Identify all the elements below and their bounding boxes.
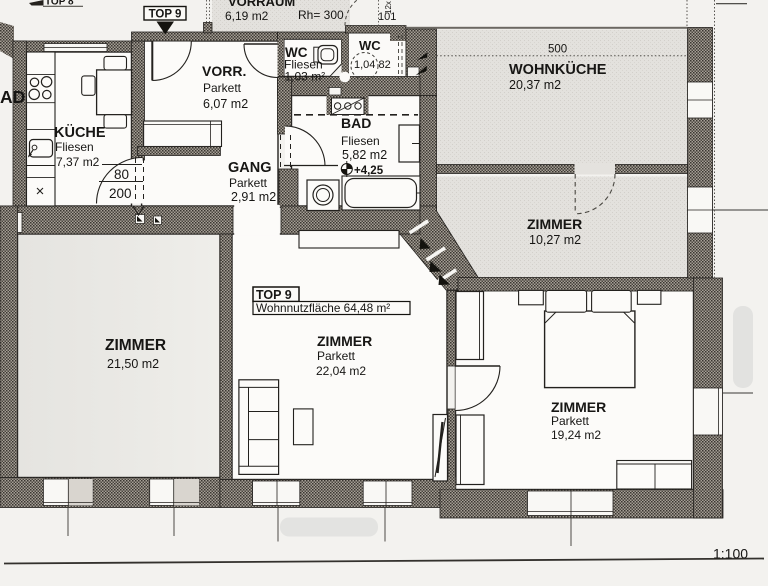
svg-text:500: 500	[548, 44, 567, 56]
svg-text:20,37 m2: 20,37 m2	[509, 78, 561, 92]
svg-text:10,27 m2: 10,27 m2	[529, 233, 581, 247]
svg-text:VORRAUM: VORRAUM	[228, 0, 295, 9]
svg-text:5,82 m2: 5,82 m2	[342, 148, 387, 162]
svg-text:TOP 9: TOP 9	[149, 8, 182, 20]
svg-text:ZIMMER: ZIMMER	[527, 216, 582, 232]
svg-text:1,03 m²: 1,03 m²	[285, 70, 326, 84]
svg-text:Fliesen: Fliesen	[341, 134, 380, 148]
svg-text:ZIMMER: ZIMMER	[317, 333, 372, 349]
svg-text:ZIMMER: ZIMMER	[105, 337, 166, 354]
svg-text:12x: 12x	[384, 1, 393, 14]
svg-text:Parkett: Parkett	[203, 81, 242, 95]
svg-text:Wohnnutzfläche 64,48 m²: Wohnnutzfläche 64,48 m²	[256, 301, 390, 315]
svg-text:6,19 m2: 6,19 m2	[225, 9, 269, 23]
svg-text:200: 200	[109, 186, 132, 201]
svg-text:Parkett: Parkett	[551, 414, 590, 428]
svg-text:7,37 m2: 7,37 m2	[56, 155, 100, 169]
svg-text:2,91 m2: 2,91 m2	[231, 190, 276, 204]
svg-text:+4,25: +4,25	[354, 165, 384, 177]
svg-text:ZIMMER: ZIMMER	[551, 399, 606, 415]
svg-text:GANG: GANG	[228, 160, 272, 176]
svg-text:21,50 m2: 21,50 m2	[107, 357, 159, 371]
svg-text:22,04 m2: 22,04 m2	[316, 364, 366, 378]
svg-text:80: 80	[114, 167, 129, 182]
svg-text:19,24 m2: 19,24 m2	[551, 428, 601, 442]
svg-text:AD: AD	[0, 87, 25, 107]
svg-text:BAD: BAD	[341, 115, 371, 131]
svg-text:6,07 m2: 6,07 m2	[203, 97, 248, 111]
svg-text:Parkett: Parkett	[317, 349, 356, 363]
svg-text:Rh= 300: Rh= 300	[298, 8, 344, 22]
svg-text:TOP 9: TOP 9	[256, 288, 292, 302]
svg-text:1,04 82: 1,04 82	[354, 59, 391, 71]
svg-text:VORR.: VORR.	[202, 63, 246, 79]
svg-text:KÜCHE: KÜCHE	[54, 124, 106, 141]
svg-text:Fliesen: Fliesen	[55, 140, 94, 154]
svg-text:WOHNKÜCHE: WOHNKÜCHE	[509, 61, 607, 78]
svg-text:Parkett: Parkett	[229, 176, 268, 190]
svg-text:WC: WC	[359, 38, 381, 53]
svg-text:1:100: 1:100	[713, 546, 748, 562]
